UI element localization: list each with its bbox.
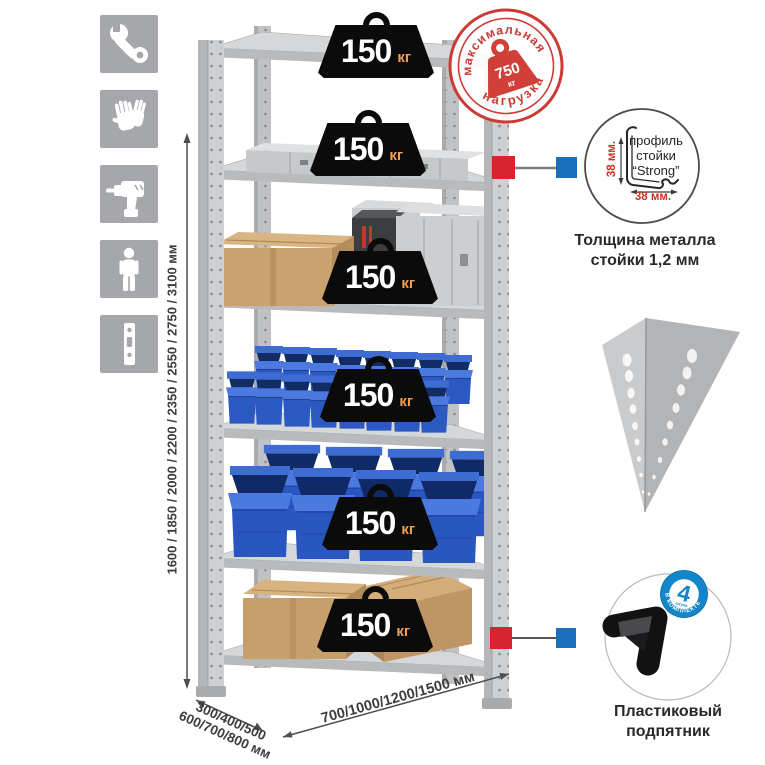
height-dimensions-label: 1600 / 1850 / 2000 / 2200 / 2350 / 2550 … (165, 230, 180, 590)
profile-label-line1: профиль (616, 133, 696, 148)
corner-post-graphic (602, 318, 740, 512)
tile-gloves (100, 90, 158, 148)
tile-wrench (100, 15, 158, 73)
profile-label: профиль стойки “Strong” (616, 133, 696, 178)
badge-value: 150 (333, 131, 383, 168)
profile-label-line3: “Strong” (616, 163, 696, 178)
badge-unit: кг (397, 49, 411, 66)
foot-plate-right (482, 698, 512, 709)
tile-drill (100, 165, 158, 223)
badge-value: 150 (340, 607, 390, 644)
load-badge-1: 150кг (318, 12, 434, 78)
plastic-foot-caption: Пластиковый подпятник (580, 702, 756, 742)
badge-unit: кг (396, 623, 410, 640)
badge-unit: кг (401, 521, 415, 538)
gloves-icon (100, 90, 158, 148)
badge-unit: кг (389, 147, 403, 164)
profile-dim-side: 38 мм. (606, 139, 618, 179)
thickness-caption: Толщина металла стойки 1,2 мм (545, 231, 745, 271)
top-marker-red (492, 156, 515, 179)
load-badge-6: 150кг (317, 586, 433, 652)
drill-icon (100, 165, 158, 223)
load-badge-2: 150кг (310, 110, 426, 176)
load-badge-3: 150кг (322, 238, 438, 304)
foot-plate-left (196, 686, 226, 697)
thickness-caption-line2: стойки 1,2 мм (545, 251, 745, 271)
foot-caption-line2: подпятник (580, 722, 756, 742)
profile-label-line2: стойки (616, 148, 696, 163)
badge-unit: кг (401, 275, 415, 292)
profile-dim-bottom: 38 мм. (623, 191, 683, 203)
plastic-foot-circle: в комплекте 4 штуки (605, 566, 731, 700)
load-badge-4: 150кг (320, 356, 436, 422)
badge-value: 150 (345, 505, 395, 542)
tile-person (100, 240, 158, 298)
post-profile-icon (100, 315, 158, 373)
bottom-connector (490, 627, 576, 649)
badge-value: 150 (343, 377, 393, 414)
foot-caption-line1: Пластиковый (580, 702, 756, 722)
tile-post-profile (100, 315, 158, 373)
load-badge-5: 150кг (322, 484, 438, 550)
height-dimension-line (184, 133, 191, 689)
bottom-marker-blue (556, 628, 576, 648)
bottom-marker-red (490, 627, 512, 649)
wrench-icon (100, 15, 158, 73)
badge-value: 150 (345, 259, 395, 296)
badge-value: 150 (341, 33, 391, 70)
infographic-canvas: максимальная нагрузка 750 кг (0, 0, 765, 765)
top-marker-blue (556, 157, 577, 178)
person-icon (100, 240, 158, 298)
top-connector (492, 156, 577, 179)
badge-unit: кг (399, 393, 413, 410)
thickness-caption-line1: Толщина металла (545, 231, 745, 251)
